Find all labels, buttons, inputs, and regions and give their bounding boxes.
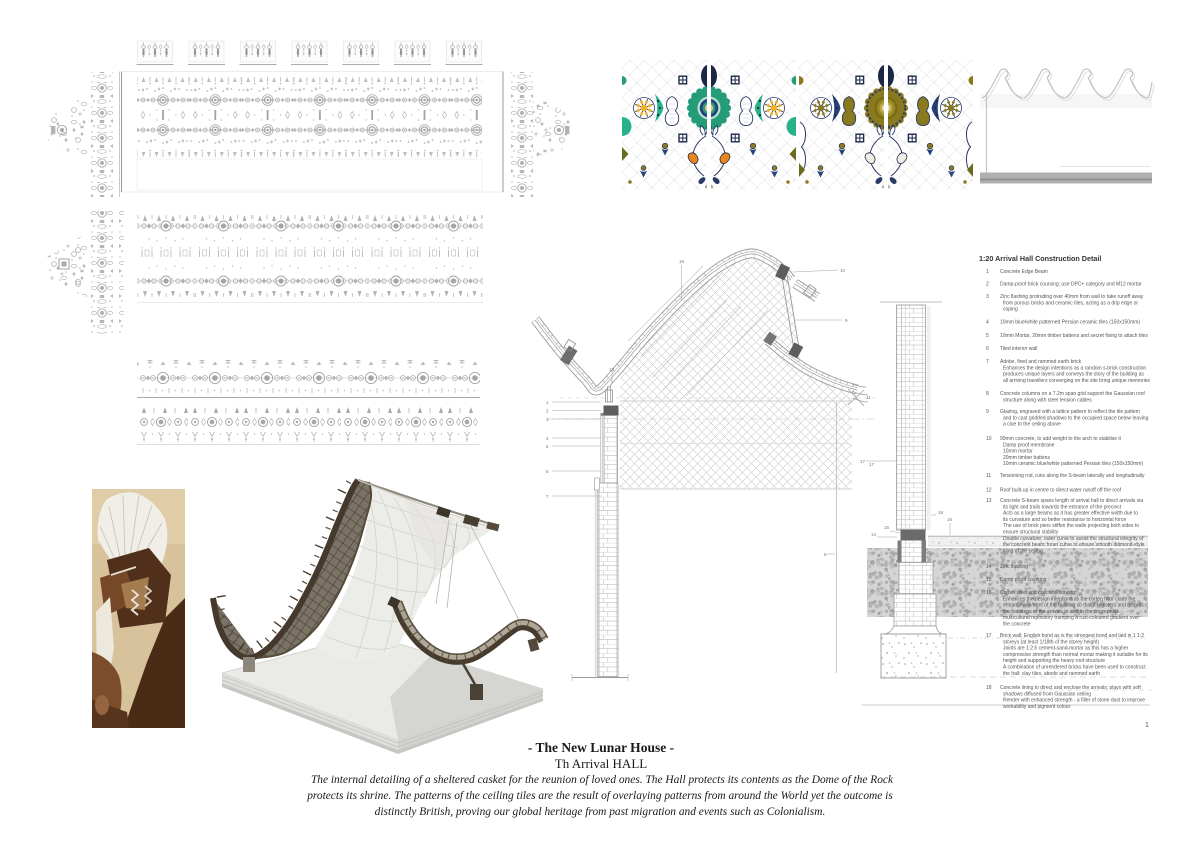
svg-text:Joints are 1:2:6 cement-sand-m: Joints are 1:2:6 cement-sand-mortar as t… (1003, 646, 1129, 652)
svg-text:14: 14 (871, 532, 877, 537)
svg-text:15: 15 (986, 577, 992, 583)
svg-text:13: 13 (609, 367, 615, 372)
svg-text:Enhances the design intentions: Enhances the design intentions as a rand… (1003, 365, 1146, 371)
svg-text:Zinc flashing: Zinc flashing (1000, 564, 1028, 570)
svg-text:8: 8 (986, 391, 989, 397)
svg-text:Double curvature: outer curve: Double curvature: outer curve to assist … (1003, 536, 1144, 542)
svg-text:10mm mortar: 10mm mortar (1003, 449, 1033, 455)
svg-text:1: 1 (1145, 722, 1149, 729)
svg-text:Concrete S-beam spans length o: Concrete S-beam spans length of arrival … (1000, 498, 1143, 504)
svg-text:9: 9 (986, 409, 989, 415)
svg-text:the hall: clay tiles, abode an: the hall: clay tiles, abode and rammed e… (1003, 671, 1100, 677)
svg-text:7: 7 (986, 359, 989, 365)
svg-text:Zinc flashing protruding over: Zinc flashing protruding over 40mm from … (1000, 294, 1144, 300)
svg-text:distinctly British, proving ou: distinctly British, proving our global h… (375, 806, 826, 818)
svg-text:Enhances the design intentions: Enhances the design intentions as the co… (1003, 596, 1136, 602)
svg-text:16: 16 (947, 517, 953, 522)
svg-text:18: 18 (938, 510, 944, 515)
svg-text:structure along with steel ten: structure along with steel tension cable… (1003, 397, 1092, 403)
svg-text:ensure structural stability: ensure structural stability (1003, 530, 1059, 536)
svg-text:20mm timber battens: 20mm timber battens (1003, 455, 1050, 461)
svg-text:Damp-proof brick coursing; use: Damp-proof brick coursing; use DPC+ cate… (1000, 282, 1142, 288)
svg-text:Acts as a large beams as it ha: Acts as a large beams as it has greater … (1003, 511, 1138, 517)
svg-text:15: 15 (884, 525, 890, 530)
svg-text:Roof built-up in centre to dir: Roof built-up in centre to direct water … (1000, 488, 1122, 494)
svg-text:Tiled interior wall: Tiled interior wall (1000, 346, 1037, 352)
svg-text:17: 17 (860, 459, 866, 464)
svg-text:10mm Mortar, 20mm timber batte: 10mm Mortar, 20mm timber battens and sec… (1000, 333, 1148, 339)
svg-text:workability and pigment colour: workability and pigment colour (1003, 704, 1071, 710)
svg-text:tiling of the ceiling: tiling of the ceiling (1003, 548, 1043, 554)
svg-text:17: 17 (986, 633, 992, 639)
svg-text:3: 3 (986, 294, 989, 300)
svg-text:Th Arrival HALL: Th Arrival HALL (555, 756, 647, 771)
svg-text:16: 16 (986, 590, 992, 596)
svg-text:4: 4 (986, 320, 989, 326)
svg-text:shadows diffused from Gaussian: shadows diffused from Gaussian ceiling (1003, 691, 1091, 697)
svg-text:Tensioning rod, runs along the: Tensioning rod, runs along the S-beam la… (1000, 473, 1145, 479)
svg-text:produces unique layers and con: produces unique layers and conveys the s… (1003, 372, 1144, 378)
svg-text:from porous bricks and ceramic: from porous bricks and ceramic tiles, ac… (1003, 300, 1138, 306)
svg-text:storeys (at least 1/18th of th: storeys (at least 1/18th of the storey h… (1003, 639, 1099, 645)
svg-text:6: 6 (986, 346, 989, 352)
svg-text:14: 14 (986, 564, 992, 570)
svg-text:12: 12 (986, 488, 992, 494)
svg-text:10mm blue/white patterned Pers: 10mm blue/white patterned Persian cerami… (1000, 320, 1140, 326)
svg-text:the footsteps of the arrivals: the footsteps of the arrivals to add to … (1003, 609, 1118, 615)
svg-text:The internal detailing of a sh: The internal detailing of a sheltered ca… (311, 774, 894, 786)
svg-text:5: 5 (986, 333, 989, 339)
svg-text:Render with enhanced strength: Render with enhanced strength - a filler… (1003, 698, 1145, 704)
svg-text:all arriving travellers conver: all arriving travellers converging on th… (1003, 378, 1151, 384)
svg-text:17: 17 (869, 462, 875, 467)
svg-text:Corten steel and concrete floo: Corten steel and concrete flooring (1000, 590, 1075, 596)
svg-text:its curvature and so better re: its curvature and so better resistance t… (1003, 517, 1126, 523)
svg-text:Damp proof coursing: Damp proof coursing (1000, 577, 1047, 583)
svg-text:A combination of unrendered br: A combination of unrendered bricks have … (1003, 665, 1146, 671)
svg-text:11: 11 (866, 395, 871, 400)
svg-text:multicultural repository tramp: multicultural repository tramping a rust… (1003, 615, 1140, 621)
svg-text:18: 18 (986, 685, 992, 691)
svg-text:height and supporting the heav: height and supporting the heavy roof str… (1003, 658, 1105, 664)
svg-text:protects its shrine. The patte: protects its shrine. The patterns of the… (306, 790, 893, 802)
svg-text:10: 10 (986, 436, 992, 442)
svg-text:2: 2 (986, 282, 989, 288)
svg-text:13: 13 (986, 498, 992, 504)
svg-text:and to cast gridded shadows to: and to cast gridded shadows to the occup… (1003, 415, 1149, 421)
svg-text:The use of brick piers stiffen: The use of brick piers stiffen the walls… (1003, 523, 1139, 529)
svg-text:Concrete columns on a 7.2m spa: Concrete columns on a 7.2m span grid sup… (1000, 391, 1145, 397)
svg-text:- The New Lunar House -: - The New Lunar House - (528, 740, 674, 755)
svg-text:18: 18 (679, 259, 685, 264)
svg-text:1: 1 (986, 269, 989, 275)
svg-text:entranceway/front of the build: entranceway/front of the building so tha… (1003, 603, 1144, 609)
svg-text:Concrete Edge Beam: Concrete Edge Beam (1000, 269, 1048, 275)
svg-text:coping: coping (1003, 307, 1018, 313)
svg-text:11: 11 (986, 473, 991, 479)
svg-text:1:20 Arrival Hall Construction: 1:20 Arrival Hall Construction Detail (979, 254, 1101, 263)
svg-text:10mm ceramic blue/white patter: 10mm ceramic blue/white patterned Persia… (1003, 461, 1143, 467)
svg-text:compressive strength than norm: compressive strength than normal mortar … (1003, 652, 1148, 658)
svg-text:10: 10 (840, 268, 846, 273)
svg-text:a clue to the ceiling above: a clue to the ceiling above (1003, 422, 1061, 428)
svg-text:Concrete lining to direct and: Concrete lining to direct and enclose th… (1000, 685, 1142, 691)
svg-text:the concrete: the concrete (1003, 622, 1031, 628)
svg-text:Glazing, engraved with a latti: Glazing, engraved with a lattice pattern… (1000, 409, 1140, 415)
svg-text:90mm concrete, to add weight t: 90mm concrete, to add weight to the arch… (1000, 436, 1122, 442)
svg-text:its light and trails towards t: its light and trails towards the entranc… (1003, 504, 1122, 510)
svg-text:Adobe, fired and rammed earth: Adobe, fired and rammed earth brick (1000, 359, 1082, 365)
svg-text:Brick wall: English bond as is: Brick wall: English bond as is the stron… (1000, 633, 1144, 639)
svg-text:Damp proof membrane: Damp proof membrane (1003, 442, 1055, 448)
svg-text:the concrete beam; inner curve: the concrete beam; inner curve to ensure… (1003, 542, 1145, 548)
